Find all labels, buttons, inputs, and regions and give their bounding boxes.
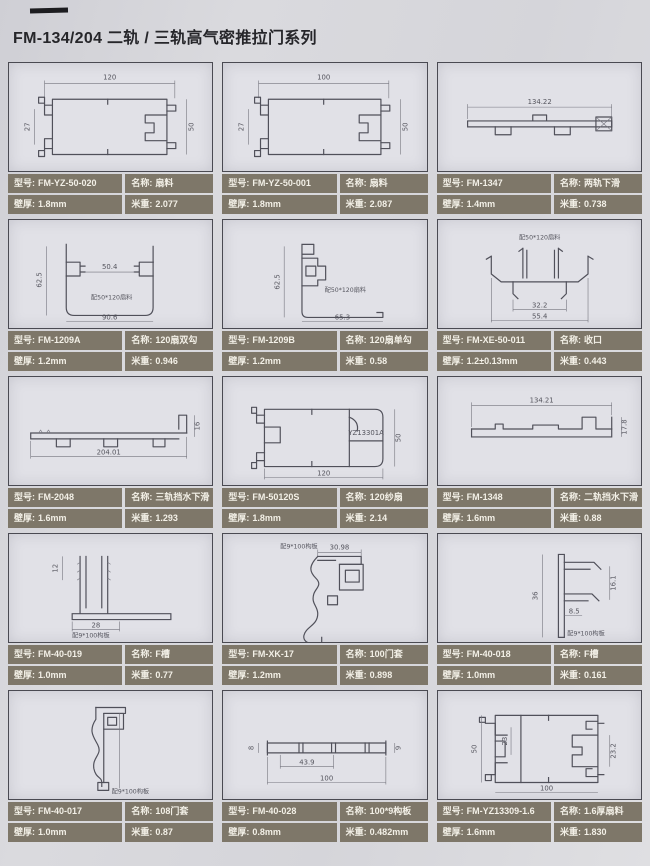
svg-text:配9*100构板: 配9*100构板 bbox=[72, 631, 110, 639]
name-cell: 名称:三轨挡水下滑 bbox=[125, 488, 213, 507]
profile-sketch-jamb-108: 配9*100构板 bbox=[9, 691, 212, 799]
wall-label: 壁厚: bbox=[14, 670, 35, 680]
profile-cell: 50 23 23.2 100 型号:FM-YZ13309-1.6 名称:1.6厚… bbox=[437, 690, 642, 842]
model-cell: 型号:FM-1347 bbox=[437, 174, 551, 193]
name-label: 名称: bbox=[560, 178, 581, 188]
weight-value: 1.830 bbox=[584, 827, 607, 837]
wall-cell: 壁厚:1.6mm bbox=[437, 509, 551, 528]
name-cell: 名称:120扇单勾 bbox=[340, 331, 428, 350]
weight-cell: 米重:2.14 bbox=[340, 509, 428, 528]
svg-text:16: 16 bbox=[193, 422, 201, 431]
name-label: 名称: bbox=[131, 178, 152, 188]
model-cell: 型号:FM-YZ-50-020 bbox=[8, 174, 122, 193]
model-label: 型号: bbox=[443, 492, 464, 502]
profile-sketch-f-profile: 36 8.5 16.1 配9*100构板 bbox=[438, 534, 641, 642]
name-label: 名称: bbox=[346, 806, 367, 816]
profile-sketch-sash: 120 27 50 bbox=[9, 63, 212, 171]
profile-drawing: 12 28 配9*100构板 bbox=[8, 533, 213, 643]
model-value: FM-40-028 bbox=[252, 806, 296, 816]
svg-text:50: 50 bbox=[470, 745, 478, 754]
model-label: 型号: bbox=[443, 178, 464, 188]
name-value: 收口 bbox=[584, 335, 602, 345]
model-label: 型号: bbox=[14, 806, 35, 816]
weight-cell: 米重:0.88 bbox=[554, 509, 642, 528]
profile-drawing: 134.22 bbox=[437, 62, 642, 172]
weight-cell: 米重:0.482mm bbox=[340, 823, 428, 842]
spec-table: 型号:FM-YZ13309-1.6 名称:1.6厚扇料 壁厚:1.6mm 米重:… bbox=[437, 802, 642, 842]
wall-cell: 壁厚:1.8mm bbox=[222, 195, 336, 214]
wall-cell: 壁厚:0.8mm bbox=[222, 823, 336, 842]
model-label: 型号: bbox=[443, 335, 464, 345]
model-value: FM-50120S bbox=[252, 492, 299, 502]
name-label: 名称: bbox=[560, 492, 581, 502]
weight-value: 0.946 bbox=[155, 356, 178, 366]
name-value: 二轨挡水下滑 bbox=[584, 492, 638, 502]
model-value: FM-YZ-50-020 bbox=[38, 178, 97, 188]
name-label: 名称: bbox=[560, 649, 581, 659]
svg-text:12: 12 bbox=[51, 564, 59, 573]
wall-value: 1.2mm bbox=[38, 356, 67, 366]
svg-text:50.4: 50.4 bbox=[102, 263, 117, 271]
svg-text:配50*120扇料: 配50*120扇料 bbox=[91, 294, 132, 302]
model-value: FM-1209A bbox=[38, 335, 81, 345]
wall-label: 壁厚: bbox=[443, 513, 464, 523]
model-cell: 型号:FM-50120S bbox=[222, 488, 336, 507]
wall-value: 0.8mm bbox=[252, 827, 281, 837]
weight-value: 0.88 bbox=[584, 513, 602, 523]
name-cell: 名称:120扇双勾 bbox=[125, 331, 213, 350]
profile-drawing: 134.21 17.8 bbox=[437, 376, 642, 486]
profile-cell: 16 204.01 型号:FM-2048 名称:三轨挡水下滑 壁厚:1.6mm … bbox=[8, 376, 213, 528]
model-cell: 型号:FM-40-017 bbox=[8, 802, 122, 821]
weight-cell: 米重:0.161 bbox=[554, 666, 642, 685]
name-label: 名称: bbox=[131, 649, 152, 659]
svg-text:43.9: 43.9 bbox=[300, 759, 315, 767]
svg-text:134.21: 134.21 bbox=[529, 396, 553, 404]
profile-cell: 配50*120扇料 32.2 55.4 型号:FM-XE-50-011 名称:收… bbox=[437, 219, 642, 371]
wall-label: 壁厚: bbox=[443, 356, 464, 366]
wall-value: 1.2±0.13mm bbox=[467, 356, 518, 366]
weight-cell: 米重:0.898 bbox=[340, 666, 428, 685]
name-cell: 名称:120纱扇 bbox=[340, 488, 428, 507]
weight-cell: 米重:0.443 bbox=[554, 352, 642, 371]
model-value: FM-YZ-50-001 bbox=[252, 178, 311, 188]
weight-label: 米重: bbox=[560, 199, 581, 209]
wall-value: 1.2mm bbox=[252, 356, 281, 366]
spec-table: 型号:FM-40-018 名称:F槽 壁厚:1.0mm 米重:0.161 bbox=[437, 645, 642, 685]
model-label: 型号: bbox=[228, 178, 249, 188]
profile-sketch-door-jamb: 配9*100构板 30.98 bbox=[223, 534, 426, 642]
weight-value: 2.087 bbox=[370, 199, 393, 209]
model-label: 型号: bbox=[228, 806, 249, 816]
name-cell: 名称:F槽 bbox=[554, 645, 642, 664]
svg-text:90.6: 90.6 bbox=[102, 313, 117, 321]
profile-cell: 134.21 17.8 型号:FM-1348 名称:二轨挡水下滑 壁厚:1.6m… bbox=[437, 376, 642, 528]
wall-value: 1.8mm bbox=[252, 513, 281, 523]
svg-text:65.3: 65.3 bbox=[335, 313, 350, 321]
weight-value: 0.161 bbox=[584, 670, 607, 680]
name-cell: 名称:100门套 bbox=[340, 645, 428, 664]
name-cell: 名称:扇料 bbox=[125, 174, 213, 193]
weight-label: 米重: bbox=[131, 513, 152, 523]
profile-drawing: 62.5 65.3 配50*120扇料 bbox=[222, 219, 427, 329]
svg-text:62.5: 62.5 bbox=[36, 272, 44, 287]
model-label: 型号: bbox=[14, 335, 35, 345]
model-value: FM-1348 bbox=[467, 492, 503, 502]
svg-text:100: 100 bbox=[540, 784, 553, 792]
model-cell: 型号:FM-2048 bbox=[8, 488, 122, 507]
weight-value: 0.482mm bbox=[370, 827, 409, 837]
weight-label: 米重: bbox=[560, 513, 581, 523]
model-value: FM-1209B bbox=[252, 335, 295, 345]
svg-text:8: 8 bbox=[248, 746, 256, 750]
svg-text:27: 27 bbox=[238, 122, 246, 131]
profile-sketch-double-rail: 134.21 17.8 bbox=[438, 377, 641, 485]
svg-text:134.22: 134.22 bbox=[527, 98, 551, 106]
svg-text:17.8: 17.8 bbox=[620, 419, 628, 434]
name-value: 100门套 bbox=[370, 649, 403, 659]
page-title: FM-134/204 二轨 / 三轨高气密推拉门系列 bbox=[13, 24, 317, 48]
model-label: 型号: bbox=[443, 649, 464, 659]
weight-value: 0.58 bbox=[370, 356, 388, 366]
spec-table: 型号:FM-1348 名称:二轨挡水下滑 壁厚:1.6mm 米重:0.88 bbox=[437, 488, 642, 528]
model-label: 型号: bbox=[443, 806, 464, 816]
profile-cell: 配9*100构板 型号:FM-40-017 名称:108门套 壁厚:1.0mm … bbox=[8, 690, 213, 842]
name-value: 扇料 bbox=[155, 178, 173, 188]
name-label: 名称: bbox=[346, 649, 367, 659]
model-value: FM-XK-17 bbox=[252, 649, 294, 659]
svg-text:8.5: 8.5 bbox=[568, 608, 579, 616]
weight-value: 0.898 bbox=[370, 670, 393, 680]
name-cell: 名称:二轨挡水下滑 bbox=[554, 488, 642, 507]
wall-label: 壁厚: bbox=[14, 356, 35, 366]
name-label: 名称: bbox=[131, 806, 152, 816]
name-value: 1.6厚扇料 bbox=[584, 806, 624, 816]
profile-drawing: 100 27 50 bbox=[222, 62, 427, 172]
weight-value: 2.077 bbox=[155, 199, 178, 209]
weight-label: 米重: bbox=[131, 199, 152, 209]
spec-table: 型号:FM-2048 名称:三轨挡水下滑 壁厚:1.6mm 米重:1.293 bbox=[8, 488, 213, 528]
wall-value: 1.8mm bbox=[252, 199, 281, 209]
weight-value: 0.443 bbox=[584, 356, 607, 366]
svg-text:配9*100构板: 配9*100构板 bbox=[281, 543, 319, 551]
spec-table: 型号:FM-40-019 名称:F槽 壁厚:1.0mm 米重:0.77 bbox=[8, 645, 213, 685]
name-cell: 名称:F槽 bbox=[125, 645, 213, 664]
spec-table: 型号:FM-40-028 名称:100*9构板 壁厚:0.8mm 米重:0.48… bbox=[222, 802, 427, 842]
name-value: 100*9构板 bbox=[370, 806, 412, 816]
weight-value: 2.14 bbox=[370, 513, 388, 523]
weight-label: 米重: bbox=[346, 356, 367, 366]
weight-label: 米重: bbox=[131, 827, 152, 837]
name-value: 两轨下滑 bbox=[584, 178, 620, 188]
svg-text:100: 100 bbox=[320, 775, 333, 783]
profile-cell: 50.4 62.5 90.6 配50*120扇料 型号:FM-1209A 名称:… bbox=[8, 219, 213, 371]
wall-cell: 壁厚:1.0mm bbox=[8, 823, 122, 842]
weight-cell: 米重:0.77 bbox=[125, 666, 213, 685]
model-label: 型号: bbox=[14, 178, 35, 188]
svg-text:16.1: 16.1 bbox=[609, 575, 617, 590]
name-label: 名称: bbox=[131, 335, 152, 345]
model-label: 型号: bbox=[14, 649, 35, 659]
name-value: F槽 bbox=[155, 649, 170, 659]
wall-label: 壁厚: bbox=[228, 356, 249, 366]
profile-cell: 12 28 配9*100构板 型号:FM-40-019 名称:F槽 壁厚:1.0… bbox=[8, 533, 213, 685]
wall-cell: 壁厚:1.2mm bbox=[222, 666, 336, 685]
weight-label: 米重: bbox=[560, 356, 581, 366]
profile-sketch-f-channel: 12 28 配9*100构板 bbox=[9, 534, 212, 642]
svg-text:YZ13301A: YZ13301A bbox=[348, 429, 385, 437]
name-value: 扇料 bbox=[370, 178, 388, 188]
model-cell: 型号:FM-1348 bbox=[437, 488, 551, 507]
weight-value: 0.77 bbox=[155, 670, 173, 680]
wall-cell: 壁厚:1.2mm bbox=[8, 352, 122, 371]
wall-cell: 壁厚:1.8mm bbox=[8, 195, 122, 214]
wall-value: 1.0mm bbox=[38, 827, 67, 837]
svg-text:50: 50 bbox=[395, 434, 403, 443]
model-cell: 型号:FM-1209B bbox=[222, 331, 336, 350]
profile-drawing: 配9*100构板 30.98 bbox=[222, 533, 427, 643]
weight-value: 0.738 bbox=[584, 199, 607, 209]
wall-value: 1.4mm bbox=[467, 199, 496, 209]
model-cell: 型号:FM-40-018 bbox=[437, 645, 551, 664]
weight-value: 1.293 bbox=[155, 513, 178, 523]
profile-drawing: 50 23 23.2 100 bbox=[437, 690, 642, 800]
model-cell: 型号:FM-40-019 bbox=[8, 645, 122, 664]
profile-cell: 120 27 50 型号:FM-YZ-50-020 名称:扇料 壁厚:1.8mm… bbox=[8, 62, 213, 214]
profile-sketch-single-hook: 62.5 65.3 配50*120扇料 bbox=[223, 220, 426, 328]
model-cell: 型号:FM-40-028 bbox=[222, 802, 336, 821]
name-cell: 名称:108门套 bbox=[125, 802, 213, 821]
weight-cell: 米重:0.946 bbox=[125, 352, 213, 371]
weight-label: 米重: bbox=[346, 670, 367, 680]
wall-value: 1.0mm bbox=[467, 670, 496, 680]
profile-cell: YZ13301A 120 50 型号:FM-50120S 名称:120纱扇 壁厚… bbox=[222, 376, 427, 528]
name-label: 名称: bbox=[346, 492, 367, 502]
wall-label: 壁厚: bbox=[14, 199, 35, 209]
name-label: 名称: bbox=[560, 335, 581, 345]
wall-label: 壁厚: bbox=[228, 827, 249, 837]
svg-text:配9*100构板: 配9*100构板 bbox=[567, 629, 605, 637]
model-value: FM-XE-50-011 bbox=[467, 335, 526, 345]
wall-cell: 壁厚:1.0mm bbox=[8, 666, 122, 685]
profile-drawing: 50.4 62.5 90.6 配50*120扇料 bbox=[8, 219, 213, 329]
name-value: 108门套 bbox=[155, 806, 188, 816]
svg-text:配50*120扇料: 配50*120扇料 bbox=[519, 233, 560, 241]
spec-table: 型号:FM-1347 名称:两轨下滑 壁厚:1.4mm 米重:0.738 bbox=[437, 174, 642, 214]
weight-cell: 米重:0.58 bbox=[340, 352, 428, 371]
name-value: 120扇双勾 bbox=[155, 335, 197, 345]
wall-cell: 壁厚:1.0mm bbox=[437, 666, 551, 685]
wall-cell: 壁厚:1.6mm bbox=[437, 823, 551, 842]
weight-label: 米重: bbox=[346, 199, 367, 209]
svg-text:50: 50 bbox=[402, 122, 410, 131]
wall-label: 壁厚: bbox=[228, 670, 249, 680]
model-cell: 型号:FM-YZ-50-001 bbox=[222, 174, 336, 193]
svg-text:23: 23 bbox=[501, 737, 509, 746]
weight-cell: 米重:2.087 bbox=[340, 195, 428, 214]
wall-value: 1.2mm bbox=[252, 670, 281, 680]
profile-drawing: 36 8.5 16.1 配9*100构板 bbox=[437, 533, 642, 643]
model-label: 型号: bbox=[228, 492, 249, 502]
weight-cell: 米重:0.87 bbox=[125, 823, 213, 842]
weight-label: 米重: bbox=[346, 513, 367, 523]
profile-sketch-plank: 8 9 43.9 100 bbox=[223, 691, 426, 799]
weight-label: 米重: bbox=[560, 827, 581, 837]
wall-label: 壁厚: bbox=[14, 513, 35, 523]
name-value: 三轨挡水下滑 bbox=[155, 492, 209, 502]
spec-table: 型号:FM-40-017 名称:108门套 壁厚:1.0mm 米重:0.87 bbox=[8, 802, 213, 842]
name-label: 名称: bbox=[560, 806, 581, 816]
weight-cell: 米重:2.077 bbox=[125, 195, 213, 214]
profile-sketch-screen-sash: YZ13301A 120 50 bbox=[223, 377, 426, 485]
name-value: 120纱扇 bbox=[370, 492, 403, 502]
name-value: 120扇单勾 bbox=[370, 335, 412, 345]
model-value: FM-40-018 bbox=[467, 649, 511, 659]
profile-cell: 134.22 型号:FM-1347 名称:两轨下滑 壁厚:1.4mm 米重:0.… bbox=[437, 62, 642, 214]
model-value: FM-2048 bbox=[38, 492, 74, 502]
name-value: F槽 bbox=[584, 649, 599, 659]
wall-value: 1.6mm bbox=[38, 513, 67, 523]
wall-value: 1.6mm bbox=[467, 513, 496, 523]
svg-text:9: 9 bbox=[395, 746, 403, 750]
spec-table: 型号:FM-XE-50-011 名称:收口 壁厚:1.2±0.13mm 米重:0… bbox=[437, 331, 642, 371]
wall-label: 壁厚: bbox=[14, 827, 35, 837]
profile-sketch-triple-rail: 16 204.01 bbox=[9, 377, 212, 485]
profile-cell: 100 27 50 型号:FM-YZ-50-001 名称:扇料 壁厚:1.8mm… bbox=[222, 62, 427, 214]
profile-sketch-sash: 100 27 50 bbox=[223, 63, 426, 171]
wall-cell: 壁厚:1.2mm bbox=[222, 352, 336, 371]
weight-cell: 米重:1.830 bbox=[554, 823, 642, 842]
wall-value: 1.8mm bbox=[38, 199, 67, 209]
name-cell: 名称:100*9构板 bbox=[340, 802, 428, 821]
model-cell: 型号:FM-XK-17 bbox=[222, 645, 336, 664]
wall-value: 1.0mm bbox=[38, 670, 67, 680]
svg-text:30.98: 30.98 bbox=[330, 544, 350, 552]
model-value: FM-YZ13309-1.6 bbox=[467, 806, 535, 816]
profile-cell: 8 9 43.9 100 型号:FM-40-028 名称:100*9构板 壁厚:… bbox=[222, 690, 427, 842]
profile-cell: 36 8.5 16.1 配9*100构板 型号:FM-40-018 名称:F槽 … bbox=[437, 533, 642, 685]
spec-table: 型号:FM-50120S 名称:120纱扇 壁厚:1.8mm 米重:2.14 bbox=[222, 488, 427, 528]
wall-label: 壁厚: bbox=[443, 827, 464, 837]
name-cell: 名称:两轨下滑 bbox=[554, 174, 642, 193]
weight-label: 米重: bbox=[346, 827, 367, 837]
spec-table: 型号:FM-YZ-50-020 名称:扇料 壁厚:1.8mm 米重:2.077 bbox=[8, 174, 213, 214]
weight-label: 米重: bbox=[560, 670, 581, 680]
svg-text:32.2: 32.2 bbox=[532, 302, 547, 310]
wall-cell: 壁厚:1.6mm bbox=[8, 509, 122, 528]
profile-cell: 62.5 65.3 配50*120扇料 型号:FM-1209B 名称:120扇单… bbox=[222, 219, 427, 371]
weight-label: 米重: bbox=[131, 670, 152, 680]
svg-text:204.01: 204.01 bbox=[97, 449, 121, 457]
profile-drawing: 16 204.01 bbox=[8, 376, 213, 486]
wall-label: 壁厚: bbox=[228, 513, 249, 523]
profile-drawing: 配50*120扇料 32.2 55.4 bbox=[437, 219, 642, 329]
model-label: 型号: bbox=[228, 649, 249, 659]
name-label: 名称: bbox=[346, 335, 367, 345]
model-label: 型号: bbox=[228, 335, 249, 345]
name-label: 名称: bbox=[131, 492, 152, 502]
spec-table: 型号:FM-XK-17 名称:100门套 壁厚:1.2mm 米重:0.898 bbox=[222, 645, 427, 685]
name-cell: 名称:1.6厚扇料 bbox=[554, 802, 642, 821]
svg-text:100: 100 bbox=[317, 73, 330, 81]
svg-text:36: 36 bbox=[531, 592, 539, 601]
model-cell: 型号:FM-XE-50-011 bbox=[437, 331, 551, 350]
profile-drawing: 配9*100构板 bbox=[8, 690, 213, 800]
name-cell: 名称:扇料 bbox=[340, 174, 428, 193]
model-cell: 型号:FM-YZ13309-1.6 bbox=[437, 802, 551, 821]
svg-text:120: 120 bbox=[317, 469, 330, 477]
svg-text:62.5: 62.5 bbox=[274, 274, 282, 289]
weight-cell: 米重:1.293 bbox=[125, 509, 213, 528]
wall-value: 1.6mm bbox=[467, 827, 496, 837]
wall-label: 壁厚: bbox=[443, 199, 464, 209]
svg-text:配9*100构板: 配9*100构板 bbox=[112, 787, 149, 795]
profile-sketch-clip: 配50*120扇料 32.2 55.4 bbox=[438, 220, 641, 328]
weight-value: 0.87 bbox=[155, 827, 173, 837]
wall-cell: 壁厚:1.4mm bbox=[437, 195, 551, 214]
model-value: FM-40-019 bbox=[38, 649, 82, 659]
svg-text:27: 27 bbox=[24, 122, 32, 131]
model-value: FM-1347 bbox=[467, 178, 503, 188]
spec-table: 型号:FM-1209B 名称:120扇单勾 壁厚:1.2mm 米重:0.58 bbox=[222, 331, 427, 371]
page-corner-dash bbox=[30, 8, 68, 14]
profile-grid: 120 27 50 型号:FM-YZ-50-020 名称:扇料 壁厚:1.8mm… bbox=[8, 62, 642, 842]
svg-text:23.2: 23.2 bbox=[609, 743, 617, 758]
profile-drawing: 8 9 43.9 100 bbox=[222, 690, 427, 800]
profile-drawing: YZ13301A 120 50 bbox=[222, 376, 427, 486]
wall-label: 壁厚: bbox=[443, 670, 464, 680]
model-cell: 型号:FM-1209A bbox=[8, 331, 122, 350]
svg-text:120: 120 bbox=[103, 73, 116, 81]
profile-sketch-thick-sash: 50 23 23.2 100 bbox=[438, 691, 641, 799]
wall-cell: 壁厚:1.8mm bbox=[222, 509, 336, 528]
profile-sketch-double-hook: 50.4 62.5 90.6 配50*120扇料 bbox=[9, 220, 212, 328]
name-cell: 名称:收口 bbox=[554, 331, 642, 350]
weight-cell: 米重:0.738 bbox=[554, 195, 642, 214]
model-label: 型号: bbox=[14, 492, 35, 502]
profile-sketch-bottom-rail: 134.22 bbox=[438, 63, 641, 171]
profile-drawing: 120 27 50 bbox=[8, 62, 213, 172]
name-label: 名称: bbox=[346, 178, 367, 188]
profile-cell: 配9*100构板 30.98 型号:FM-XK-17 名称:100门套 壁厚:1… bbox=[222, 533, 427, 685]
weight-label: 米重: bbox=[131, 356, 152, 366]
svg-text:50: 50 bbox=[188, 122, 196, 131]
svg-text:配50*120扇料: 配50*120扇料 bbox=[325, 286, 366, 294]
svg-text:55.4: 55.4 bbox=[532, 312, 547, 320]
spec-table: 型号:FM-YZ-50-001 名称:扇料 壁厚:1.8mm 米重:2.087 bbox=[222, 174, 427, 214]
svg-text:28: 28 bbox=[91, 621, 100, 629]
wall-label: 壁厚: bbox=[228, 199, 249, 209]
spec-table: 型号:FM-1209A 名称:120扇双勾 壁厚:1.2mm 米重:0.946 bbox=[8, 331, 213, 371]
model-value: FM-40-017 bbox=[38, 806, 82, 816]
wall-cell: 壁厚:1.2±0.13mm bbox=[437, 352, 551, 371]
